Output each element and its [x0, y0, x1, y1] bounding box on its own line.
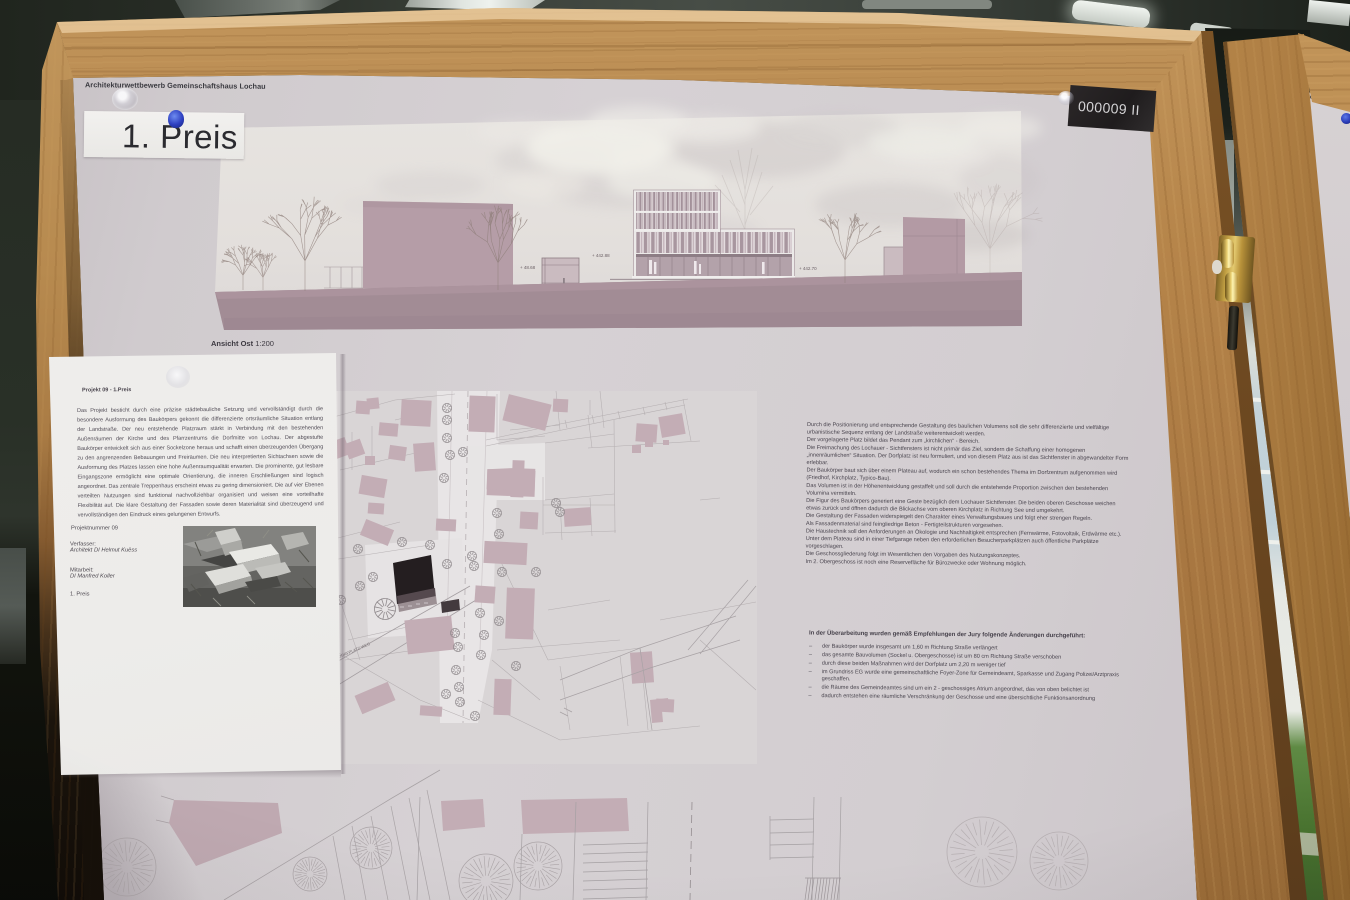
- svg-text:+ 48.68: + 48.68: [520, 265, 536, 270]
- svg-text:+ 442.88: + 442.88: [592, 253, 610, 258]
- svg-text:+ 442.70: + 442.70: [799, 266, 817, 271]
- svg-text:Ansicht Ost 1:200: Ansicht Ost 1:200: [211, 339, 274, 348]
